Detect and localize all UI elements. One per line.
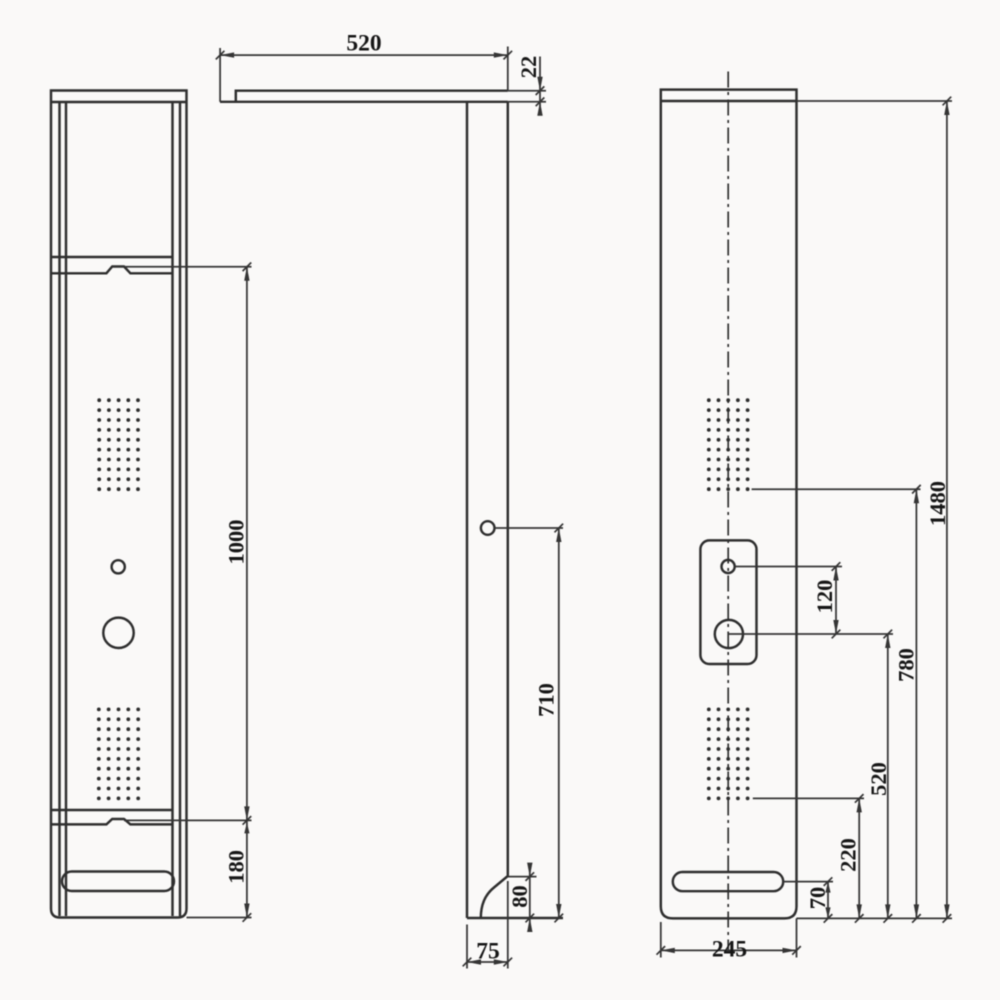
svg-text:1000: 1000 [224,520,249,565]
svg-text:80: 80 [507,885,532,908]
svg-text:520: 520 [866,762,891,796]
svg-text:520: 520 [346,30,381,56]
svg-text:710: 710 [534,683,559,717]
svg-text:70: 70 [805,887,830,910]
svg-text:780: 780 [894,648,919,682]
svg-text:245: 245 [712,936,747,962]
svg-text:180: 180 [224,850,249,884]
svg-text:22: 22 [516,56,541,79]
svg-text:120: 120 [812,580,837,614]
svg-text:220: 220 [836,838,861,872]
svg-text:75: 75 [476,939,500,965]
svg-text:1480: 1480 [925,481,950,526]
